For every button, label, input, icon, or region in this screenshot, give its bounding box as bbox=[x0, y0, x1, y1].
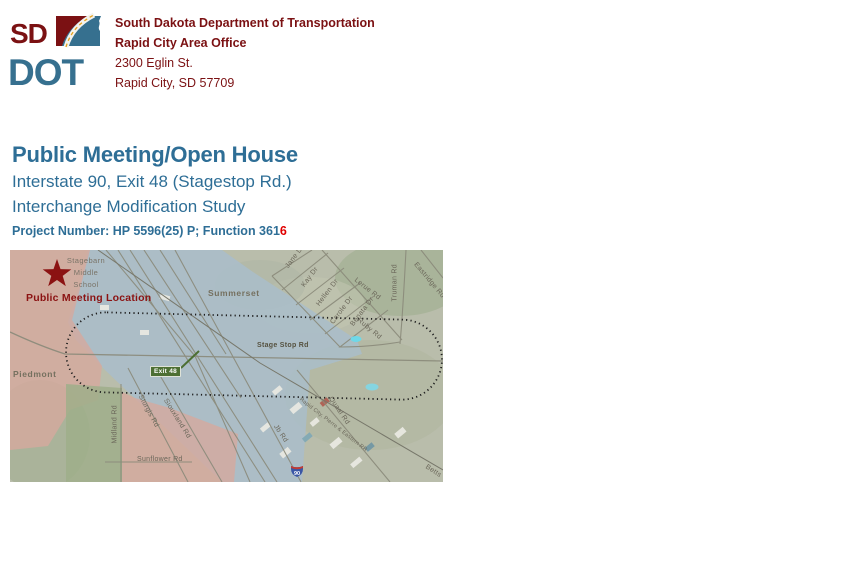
project-number-line: Project Number: HP 5596(25) P; Function … bbox=[12, 221, 298, 241]
project-number-text: Project Number: HP 5596(25) P; Function … bbox=[12, 224, 280, 238]
stagebarn-school-label: Stagebarn Middle School bbox=[62, 255, 110, 291]
org-line-department: South Dakota Department of Transportatio… bbox=[115, 13, 375, 33]
school-label-line2: Middle bbox=[62, 267, 110, 279]
town-label-piedmont: Piedmont bbox=[13, 369, 57, 379]
org-line-street: 2300 Eglin St. bbox=[115, 53, 375, 73]
town-label-summerset: Summerset bbox=[208, 288, 260, 298]
public-meeting-location-label: Public Meeting Location bbox=[26, 292, 151, 304]
sddot-logo: SD DOT bbox=[8, 12, 103, 92]
subtitle-interstate: Interstate 90, Exit 48 (Stagestop Rd.) bbox=[12, 169, 298, 194]
office-address-block: South Dakota Department of Transportatio… bbox=[115, 13, 375, 93]
road-label-stage-stop: Stage Stop Rd bbox=[257, 342, 309, 349]
road-label-sunflower: Sunflower Rd bbox=[137, 456, 183, 463]
pond bbox=[366, 384, 379, 391]
org-line-office: Rapid City Area Office bbox=[115, 33, 375, 53]
road-label-truman: Truman Rd bbox=[392, 264, 399, 301]
page-title: Public Meeting/Open House bbox=[12, 141, 298, 169]
logo-dot-text: DOT bbox=[8, 52, 85, 92]
project-number-red-digit: 6 bbox=[280, 224, 287, 238]
flyer-page: SD DOT South Dakota Department of Transp… bbox=[0, 0, 864, 576]
org-line-city: Rapid City, SD 57709 bbox=[115, 73, 375, 93]
interstate-90-shield-label: 90 bbox=[294, 471, 300, 477]
pond bbox=[351, 336, 362, 342]
study-area-map: 90 Stagebarn Middle School Public Meetin… bbox=[10, 250, 443, 482]
road-label-midland: Midland Rd bbox=[112, 405, 119, 443]
south-dakota-state-icon bbox=[56, 15, 101, 47]
title-block: Public Meeting/Open House Interstate 90,… bbox=[12, 141, 298, 241]
exit-48-sign: Exit 48 bbox=[150, 366, 181, 377]
school-label-line1: Stagebarn bbox=[62, 255, 110, 267]
logo-sd-text: SD bbox=[10, 18, 48, 49]
school-label-line3: School bbox=[62, 279, 110, 291]
subtitle-study: Interchange Modification Study bbox=[12, 194, 298, 219]
